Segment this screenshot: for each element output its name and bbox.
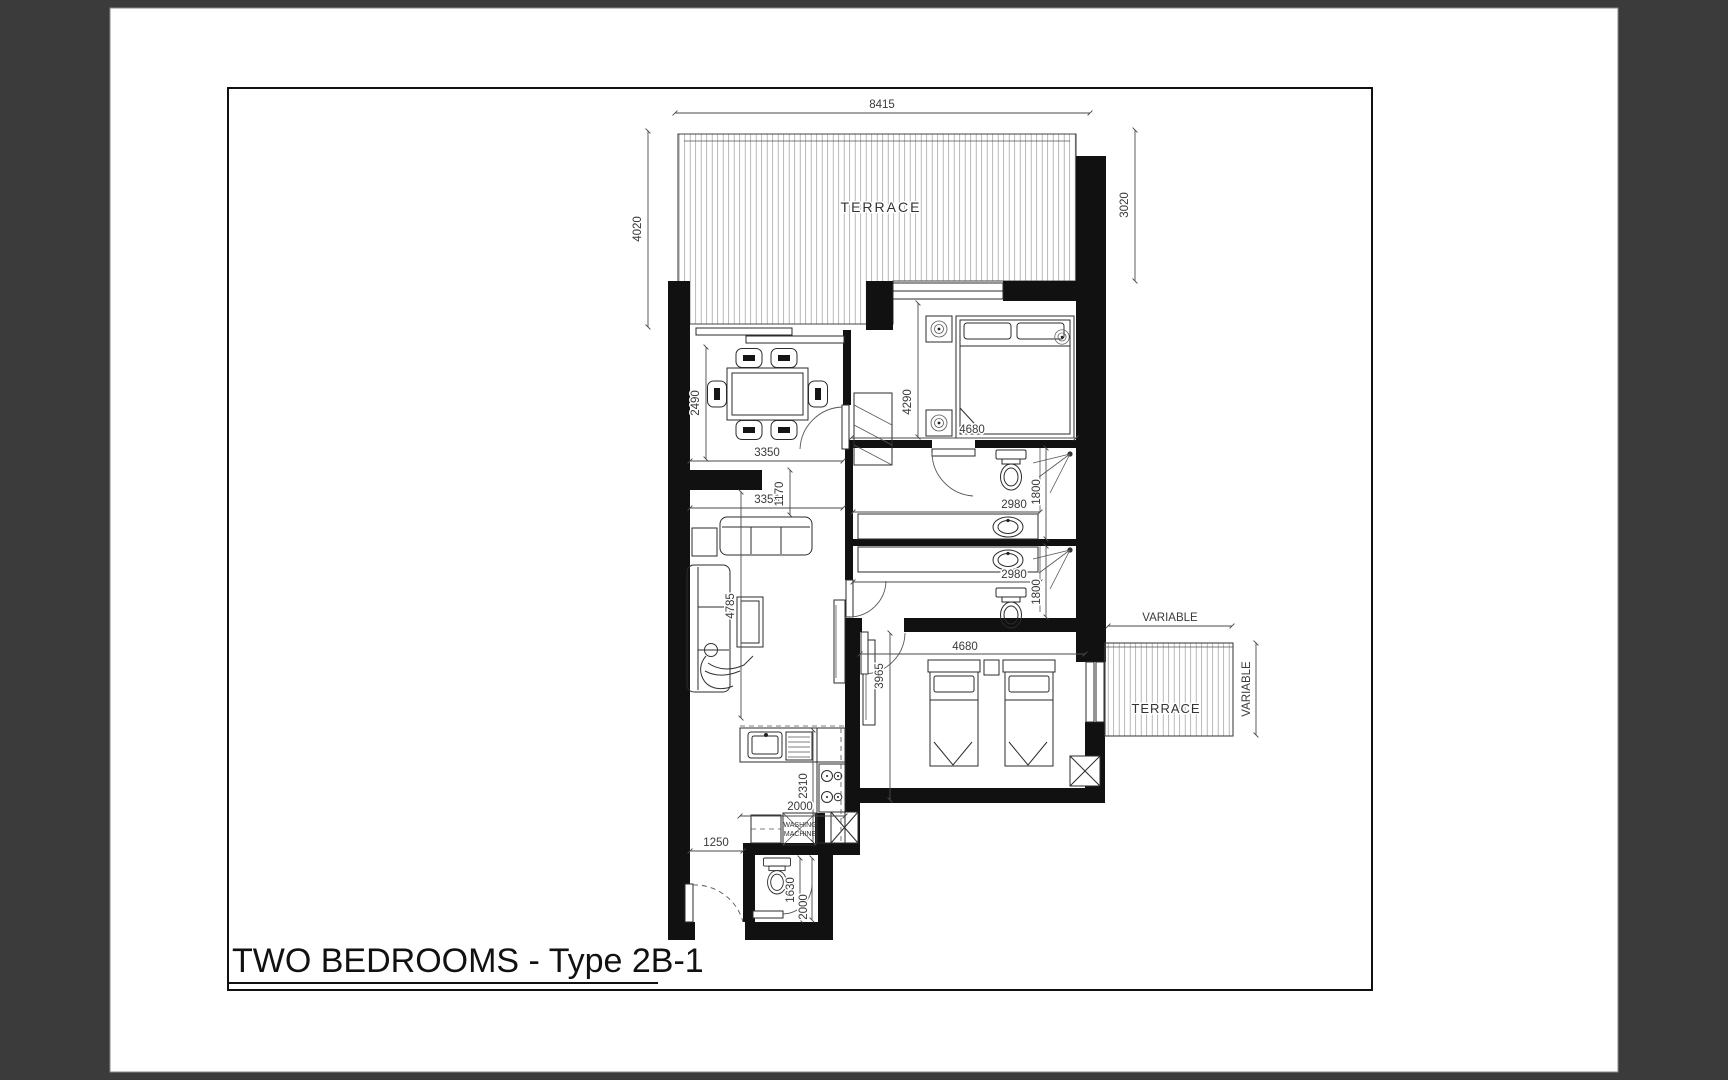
dim-wc-width: 2000 [798, 894, 810, 920]
page-title: TWO BEDROOMS - Type 2B-1 [232, 942, 704, 980]
dim-terrace-top-depth-left: 4020 [632, 216, 644, 242]
dim-bedroom2-depth: 3965 [874, 663, 886, 689]
dim-bedroom1-depth: 4290 [902, 389, 914, 415]
washing-machine-label-2: MACHINE [784, 831, 817, 838]
dim-wc-depth: 1630 [785, 877, 797, 903]
dim-terrace-top-depth-right: 3020 [1119, 192, 1131, 218]
dim-bedroom1-width: 4680 [959, 424, 985, 436]
dim-bathroom2-depth: 1800 [1031, 579, 1043, 605]
title-block: TWO BEDROOMS - Type 2B-1 [228, 942, 704, 983]
terrace-side-label: TERRACE [1131, 701, 1200, 716]
washing-machine-label-1: WASHING [783, 822, 816, 829]
window-bedroom1 [893, 283, 1003, 299]
dim-entry-width: 1250 [703, 837, 729, 849]
dim-bathroom1-depth: 1800 [1031, 479, 1043, 505]
dim-kitchen-depth: 2310 [798, 773, 810, 799]
screenshot-root: TERRACE [0, 0, 1728, 1080]
dim-hallway-width: 1170 [774, 482, 786, 507]
dim-terrace-top-width: 8415 [869, 99, 895, 111]
dim-bedroom2-width: 4680 [952, 641, 978, 653]
dim-terrace-side-depth: VARIABLE [1241, 661, 1253, 717]
terrace-side: TERRACE [1105, 643, 1233, 736]
dim-dining-width: 3350 [754, 447, 780, 459]
dim-bathroom1-width: 2980 [1001, 499, 1027, 511]
dim-terrace-side-width: VARIABLE [1142, 612, 1198, 624]
dim-dining-depth: 2490 [690, 390, 702, 416]
terrace-top-label: TERRACE [841, 199, 922, 215]
dim-kitchen-width: 2000 [787, 801, 813, 813]
dim-bathroom2-width: 2980 [1001, 569, 1027, 581]
dim-living-depth: 4785 [725, 593, 737, 619]
column-icon [1070, 756, 1100, 786]
